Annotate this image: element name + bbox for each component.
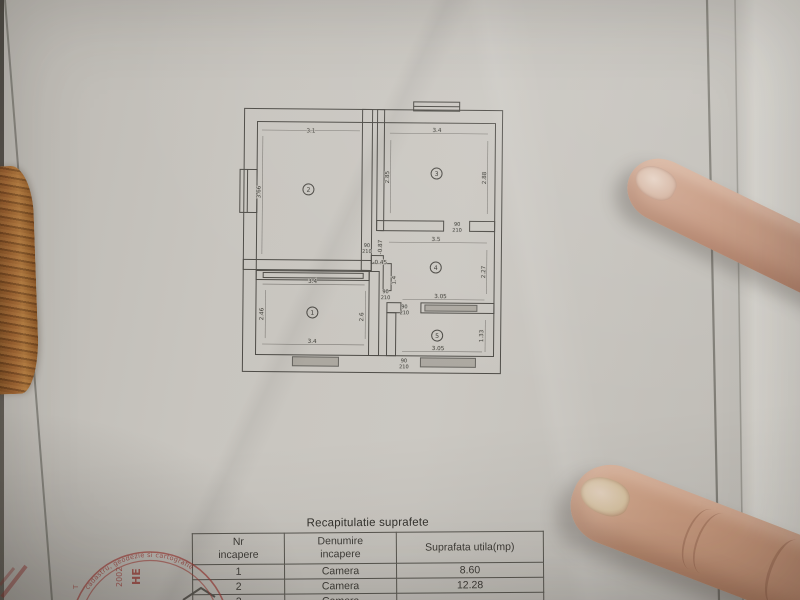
wall-room1-top-detail: [263, 273, 363, 279]
window-room5-bottom: [420, 358, 475, 367]
window-room1-bottom: [292, 357, 338, 366]
table-title: Recapitulatie suprafete: [192, 516, 544, 530]
dim-room5-bottom: 3.05: [432, 346, 445, 352]
svg-text:210: 210: [362, 249, 372, 255]
dim-room3-top: 3.4: [432, 128, 441, 134]
room1-number: 1: [310, 310, 314, 317]
cell-denumire: Camera: [285, 578, 397, 594]
wall-room3-bottom-right: [470, 221, 495, 231]
dim-corridor-1: -0.87: [378, 239, 384, 254]
cell-suprafata: [397, 592, 544, 600]
dim-room2-left: 3.66: [256, 185, 262, 198]
cell-suprafata: 12.28: [396, 577, 543, 593]
header-suprafata-utila: Suprafata utila(mp): [396, 531, 543, 563]
svg-text:210: 210: [399, 364, 409, 370]
dim-room3-left: 2.85: [385, 170, 391, 183]
cell-denumire: Camera: [285, 593, 397, 600]
wall-room3-bottom-left: [377, 221, 444, 232]
door-label-room5-top: 90 210: [400, 304, 410, 316]
header-denumire-incapere: Denumire incapere: [284, 532, 396, 564]
svg-text:210: 210: [452, 228, 462, 234]
wall-corridor-stub-2: [383, 264, 391, 291]
dim-room1-left: 2.46: [259, 307, 265, 320]
dim-room2-top: 3.1: [306, 128, 315, 134]
dim-corridor-3: 1.4: [392, 275, 398, 284]
dim-corridor-2: -0.45: [373, 260, 388, 266]
outer-wall-inner-line: [255, 121, 495, 356]
wall-room2-room1: [243, 259, 371, 270]
room4-number: 4: [434, 265, 438, 272]
red-mark-1: [2, 566, 26, 597]
dim-room4-top: 3.5: [432, 237, 441, 243]
wall-room3-left: [377, 110, 385, 231]
wall-room5-left: [386, 313, 395, 356]
door-label-room3: 90 210: [452, 222, 462, 234]
dim-room4-right: 2.27: [481, 265, 487, 278]
window-room4-room5: [425, 305, 477, 311]
dim-room3-right: 2.88: [482, 171, 488, 184]
door-label-room5-bottom: 90 210: [399, 358, 409, 370]
dim-room1-right: 2.6: [359, 312, 365, 321]
room5-number: 5: [435, 333, 439, 340]
stamp-corner-marks: [0, 540, 240, 600]
room2-number: 2: [306, 187, 310, 194]
svg-text:210: 210: [381, 295, 391, 301]
cell-suprafata: 8.60: [396, 562, 543, 578]
room3-number: 3: [435, 171, 439, 178]
dim-room4-bottom: 3.05: [434, 294, 447, 300]
window-room2-left: [240, 169, 257, 212]
door-label-corridor-top: 90 210: [362, 243, 372, 255]
svg-text:210: 210: [400, 310, 410, 316]
dim-room1-bottom: 3.4: [308, 339, 317, 345]
dim-room1-top: 3.4: [308, 279, 317, 285]
wall-room1-right: [368, 271, 379, 355]
floor-plan-drawing: 2 3 4 1 5 3.1 3.66 3.4 2.85 2.88 3.5 2.2…: [232, 94, 515, 386]
cell-denumire: Camera: [285, 563, 397, 579]
dim-room5-right: 1.33: [479, 329, 485, 342]
photo-of-floor-plan-document: 2 3 4 1 5 3.1 3.66 3.4 2.85 2.88 3.5 2.2…: [0, 0, 800, 600]
